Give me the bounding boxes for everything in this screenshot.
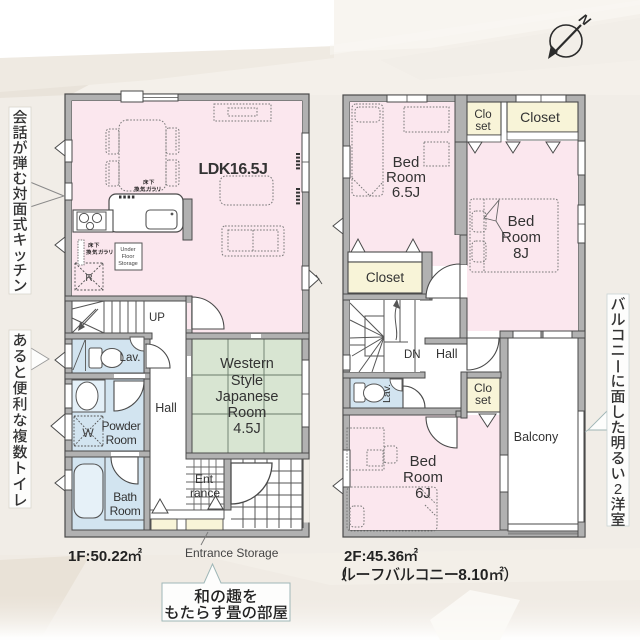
svg-text:set: set xyxy=(475,393,492,407)
svg-text:Closet: Closet xyxy=(366,270,405,285)
svg-text:rance: rance xyxy=(190,486,220,500)
svg-text:4.5J: 4.5J xyxy=(233,421,260,437)
svg-text:Ent: Ent xyxy=(195,472,214,486)
svg-text:Western: Western xyxy=(220,356,274,372)
svg-text:Hall: Hall xyxy=(436,347,458,361)
svg-text:Storage: Storage xyxy=(118,261,138,267)
svg-text:2F:45.36: 2F:45.36 xyxy=(344,548,404,565)
svg-text:1F:50.22: 1F:50.22 xyxy=(68,548,128,565)
svg-text:Floor: Floor xyxy=(122,254,135,260)
svg-text:Japanese: Japanese xyxy=(216,389,279,405)
svg-text:2: 2 xyxy=(614,481,622,498)
svg-text:Lav.: Lav. xyxy=(120,352,141,364)
svg-text:R: R xyxy=(85,273,92,284)
svg-text:8J: 8J xyxy=(513,245,529,262)
svg-text:6.5J: 6.5J xyxy=(392,184,420,201)
svg-text:Room: Room xyxy=(228,405,267,421)
svg-text:UP: UP xyxy=(149,312,165,324)
svg-text:Closet: Closet xyxy=(520,109,560,125)
svg-text:Hall: Hall xyxy=(155,401,177,415)
svg-text:6J: 6J xyxy=(415,485,431,502)
svg-text:Room: Room xyxy=(106,433,137,447)
svg-text:Bed: Bed xyxy=(410,453,437,470)
svg-text:Lav.: Lav. xyxy=(381,384,393,403)
svg-text:W: W xyxy=(82,426,94,440)
svg-text:Bath: Bath xyxy=(113,490,137,504)
svg-text:Entrance Storage: Entrance Storage xyxy=(185,546,279,560)
svg-text:LDK16.5J: LDK16.5J xyxy=(199,161,268,178)
svg-text:Under: Under xyxy=(120,247,135,253)
svg-text:DN: DN xyxy=(404,349,421,361)
svg-text:set: set xyxy=(475,121,491,133)
svg-text:Style: Style xyxy=(231,373,263,389)
svg-text:8.10: 8.10 xyxy=(458,567,488,584)
svg-text:Clo: Clo xyxy=(474,109,491,121)
svg-text:Balcony: Balcony xyxy=(514,430,559,444)
svg-text:Room: Room xyxy=(110,504,141,518)
svg-text:Powder: Powder xyxy=(102,419,141,433)
svg-text:Room: Room xyxy=(501,229,541,246)
svg-text:Bed: Bed xyxy=(508,213,535,230)
svg-text:Room: Room xyxy=(403,469,443,486)
